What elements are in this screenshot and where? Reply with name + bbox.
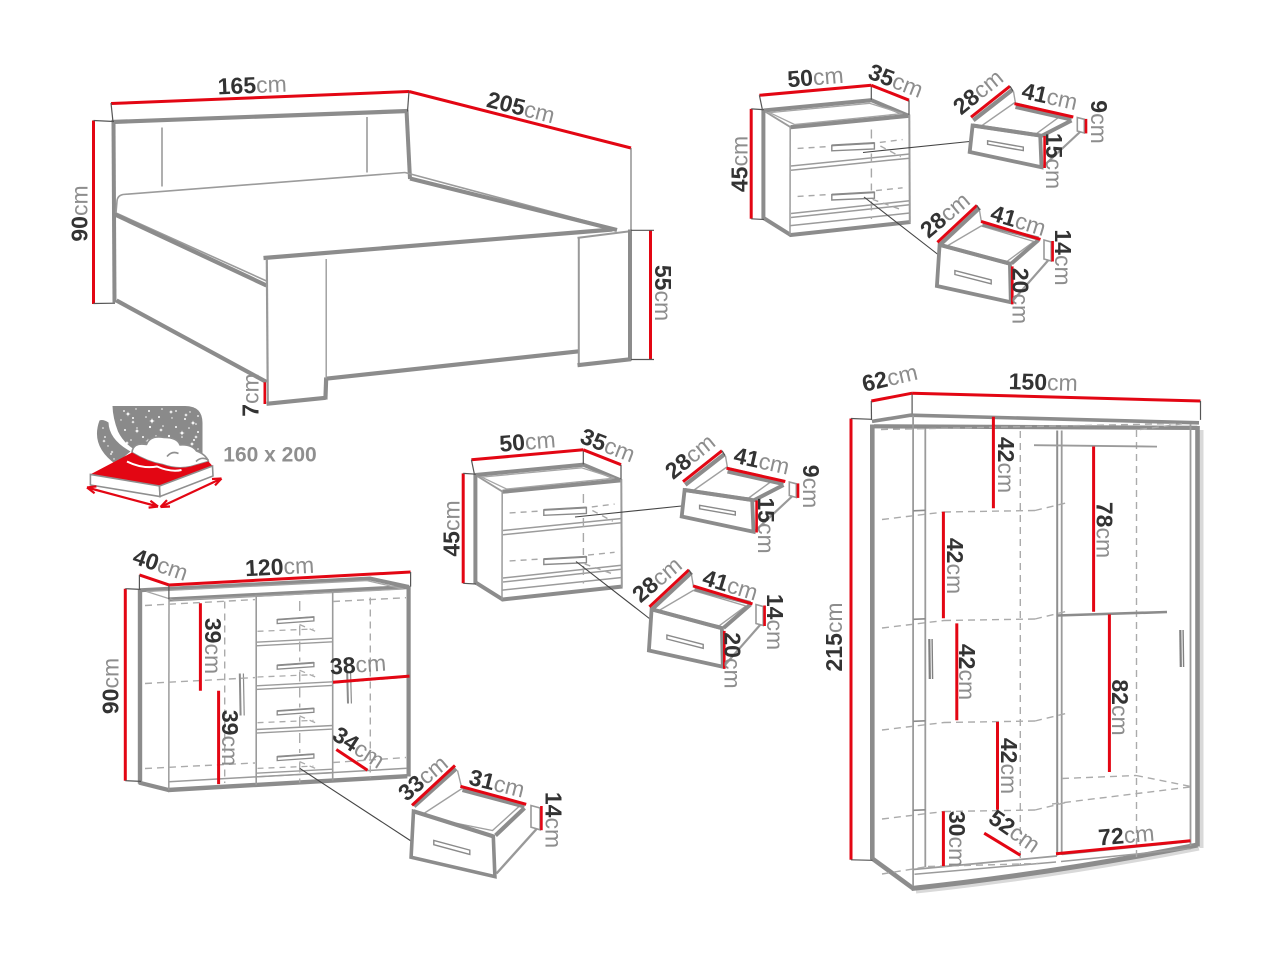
svg-text:55cm: 55cm bbox=[650, 265, 676, 321]
svg-text:120cm: 120cm bbox=[244, 552, 314, 582]
svg-text:215cm: 215cm bbox=[821, 602, 847, 671]
svg-text:150cm: 150cm bbox=[1008, 368, 1078, 396]
svg-text:72cm: 72cm bbox=[1097, 820, 1155, 851]
svg-text:38cm: 38cm bbox=[329, 650, 387, 680]
svg-text:50cm: 50cm bbox=[786, 62, 844, 92]
svg-text:42cm: 42cm bbox=[942, 538, 968, 594]
svg-text:90cm: 90cm bbox=[98, 658, 124, 714]
svg-text:39cm: 39cm bbox=[217, 710, 243, 766]
svg-text:39cm: 39cm bbox=[200, 618, 226, 674]
svg-text:45cm: 45cm bbox=[727, 136, 753, 192]
svg-text:90cm: 90cm bbox=[67, 185, 93, 241]
svg-text:82cm: 82cm bbox=[1107, 679, 1133, 735]
svg-text:165cm: 165cm bbox=[217, 71, 287, 100]
svg-text:42cm: 42cm bbox=[954, 644, 980, 700]
svg-text:160 x 200: 160 x 200 bbox=[223, 444, 316, 467]
svg-text:30cm: 30cm bbox=[944, 811, 970, 867]
svg-text:9cm: 9cm bbox=[1086, 100, 1112, 143]
svg-text:14cm: 14cm bbox=[1050, 229, 1076, 285]
svg-text:42cm: 42cm bbox=[996, 738, 1022, 794]
svg-text:20cm: 20cm bbox=[1008, 268, 1034, 324]
svg-text:14cm: 14cm bbox=[541, 792, 567, 848]
svg-text:7cm: 7cm bbox=[238, 373, 264, 416]
svg-text:78cm: 78cm bbox=[1092, 502, 1118, 558]
svg-text:15cm: 15cm bbox=[1041, 133, 1067, 189]
svg-text:42cm: 42cm bbox=[993, 437, 1019, 493]
